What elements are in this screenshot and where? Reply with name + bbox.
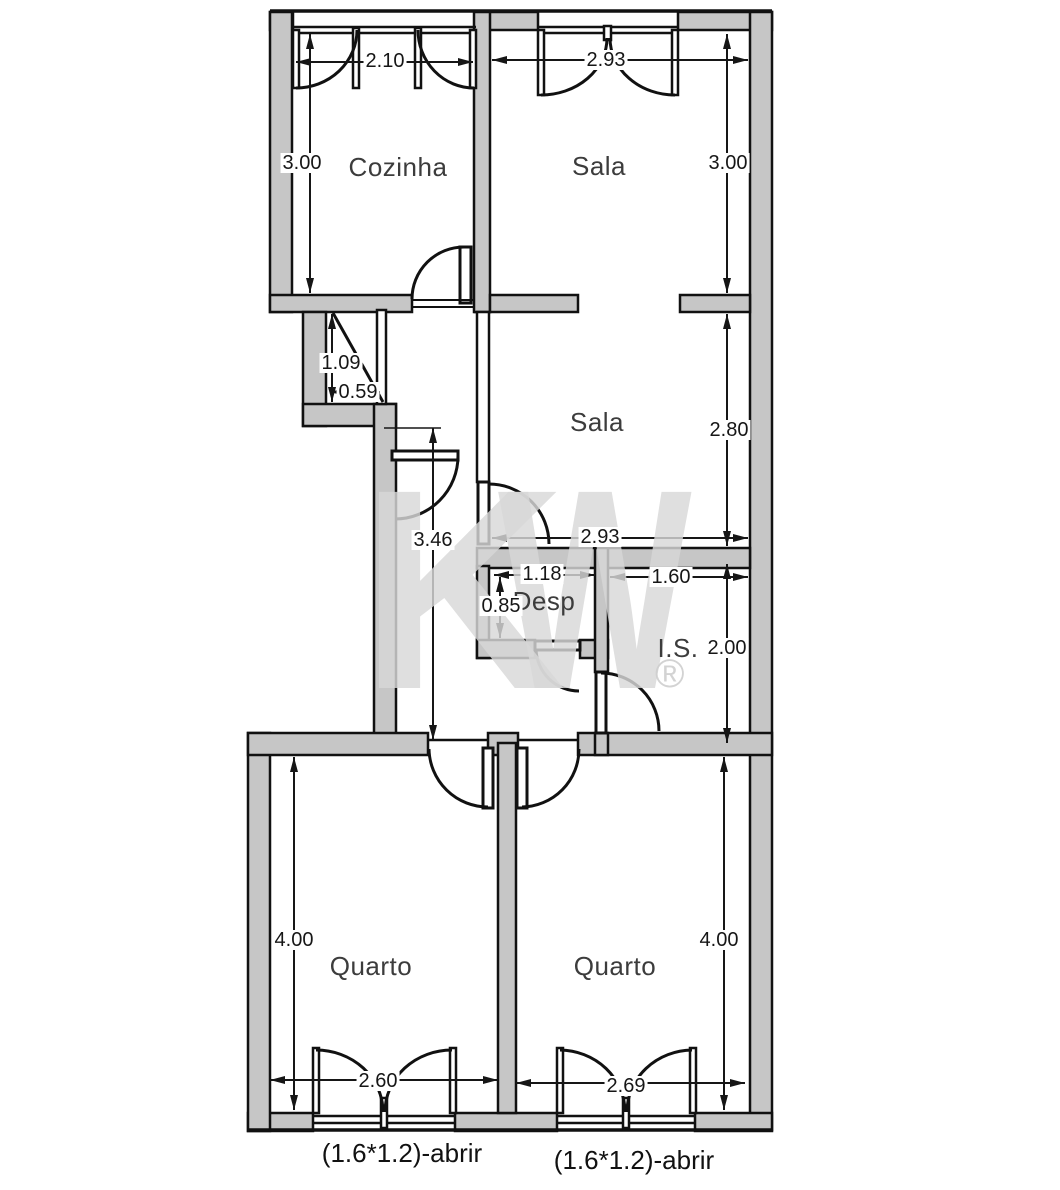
dim-desp-width: 1.18 <box>521 564 564 584</box>
dim-quarto-left-height: 4.00 <box>273 930 316 950</box>
dim-vestibule-depth: 1.09 <box>320 353 363 373</box>
room-label-sala-top: Sala <box>572 153 626 179</box>
door-cozinha <box>412 247 475 307</box>
dim-sala-top-width: 2.93 <box>585 50 628 70</box>
room-label-quarto-right: Quarto <box>574 953 657 979</box>
dim-sala-top-height: 3.00 <box>707 153 750 173</box>
door-quarto-right <box>517 740 579 808</box>
room-label-quarto-left: Quarto <box>330 953 413 979</box>
dim-cozinha-width: 2.10 <box>364 51 407 71</box>
dim-is-height: 2.00 <box>706 638 749 658</box>
dim-sala-mid-height: 2.80 <box>708 420 751 440</box>
dim-sala-mid-width: 2.93 <box>579 527 622 547</box>
dim-quarto-right-width: 2.69 <box>605 1076 648 1096</box>
dim-desp-height: 0.85 <box>480 596 523 616</box>
door-quarto-left <box>428 740 493 808</box>
dim-quarto-right-height: 4.00 <box>698 930 741 950</box>
dim-vestibule-width: 0.59 <box>337 382 380 402</box>
window-annotation-right: (1.6*1.2)-abrir <box>554 1147 714 1173</box>
dim-quarto-left-width: 2.60 <box>357 1071 400 1091</box>
room-label-cozinha: Cozinha <box>349 154 448 180</box>
room-label-sala-mid: Sala <box>570 409 624 435</box>
room-label-is: I.S. <box>657 635 698 661</box>
window-annotation-left: (1.6*1.2)-abrir <box>322 1140 482 1166</box>
dim-corridor-length: 3.46 <box>412 530 455 550</box>
dim-cozinha-height: 3.00 <box>281 153 324 173</box>
dim-is-width: 1.60 <box>650 567 693 587</box>
floorplan-page: K W ® Cozinha Sala Sala Desp I.S. Quarto… <box>0 0 1060 1190</box>
